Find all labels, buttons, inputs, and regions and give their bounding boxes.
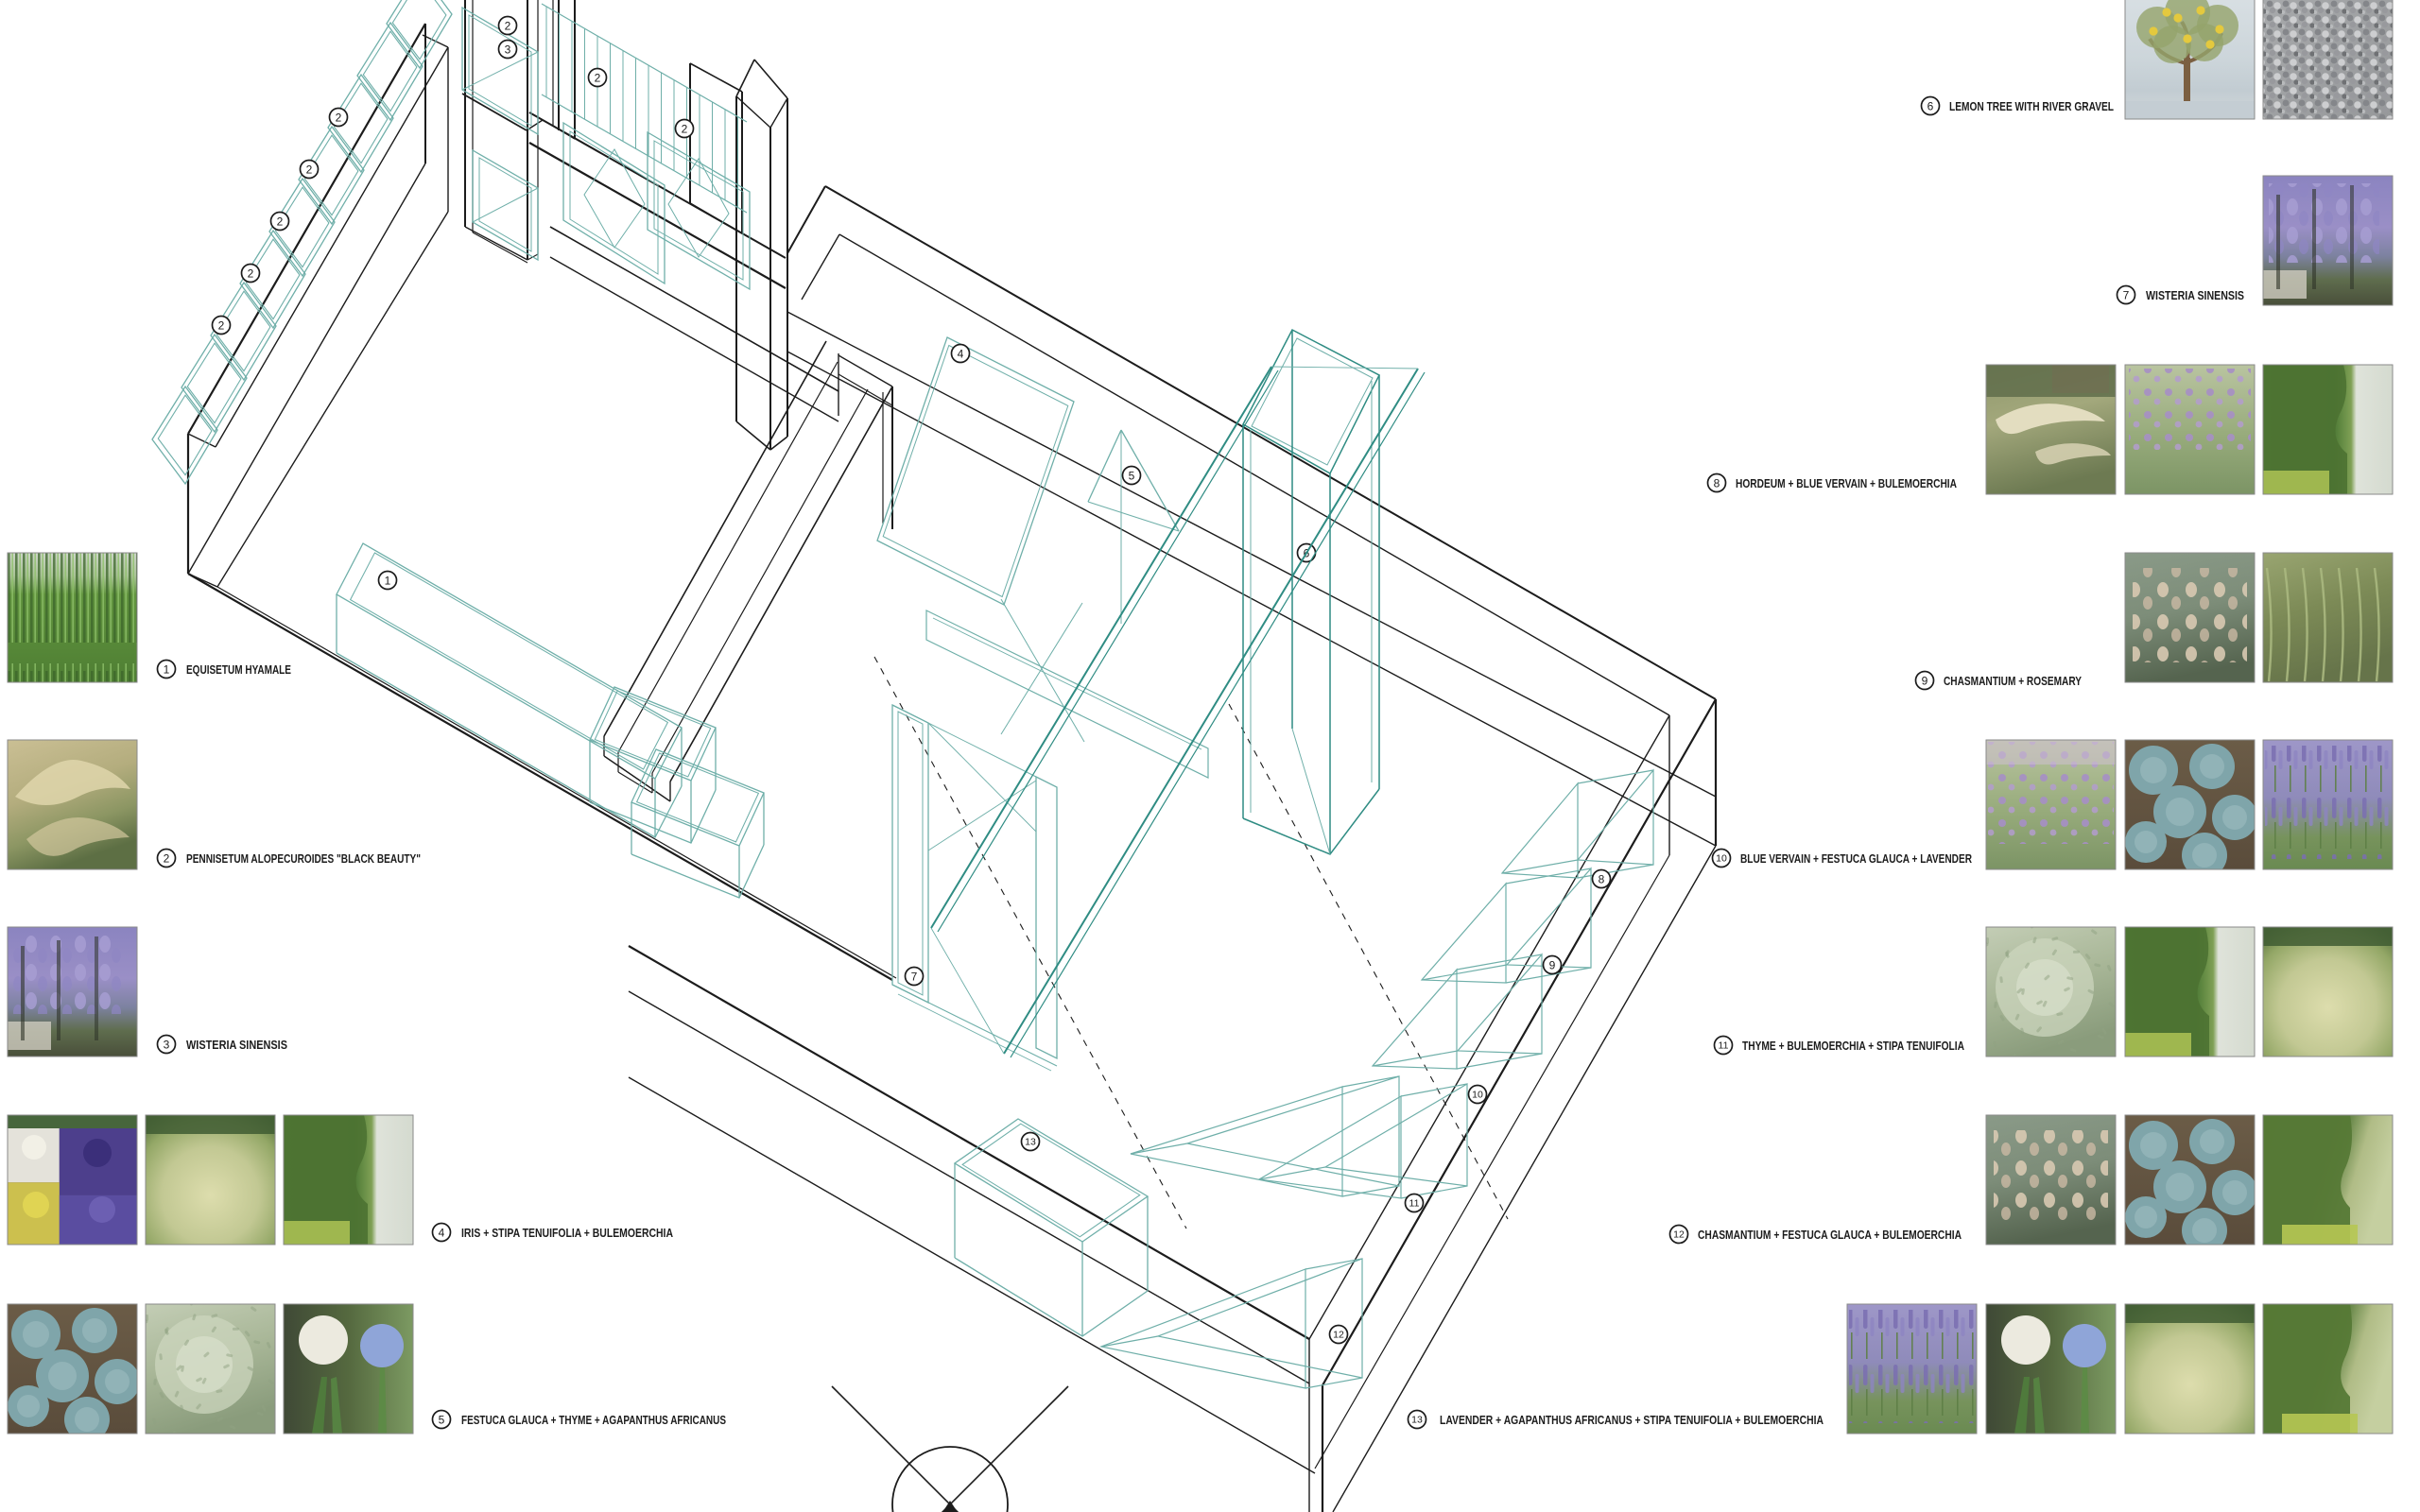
svg-text:9: 9 [1549, 959, 1556, 972]
svg-text:5: 5 [439, 1414, 445, 1427]
svg-text:2: 2 [682, 123, 688, 136]
svg-text:4: 4 [958, 348, 964, 361]
svg-text:1: 1 [164, 663, 170, 677]
svg-text:EQUISETUM HYAMALE: EQUISETUM HYAMALE [186, 662, 291, 677]
svg-text:2: 2 [277, 215, 284, 229]
svg-text:CHASMANTIUM + ROSEMARY: CHASMANTIUM + ROSEMARY [1944, 674, 2082, 688]
svg-text:4: 4 [439, 1227, 445, 1240]
svg-text:2: 2 [595, 72, 601, 85]
svg-text:2: 2 [218, 319, 225, 333]
svg-text:11: 11 [1409, 1198, 1420, 1210]
svg-text:13: 13 [1411, 1415, 1423, 1426]
svg-text:6: 6 [1927, 100, 1934, 113]
svg-text:10: 10 [1472, 1090, 1483, 1101]
svg-text:5: 5 [1129, 470, 1135, 483]
svg-text:WISTERIA SINENSIS: WISTERIA SINENSIS [186, 1038, 287, 1052]
svg-text:7: 7 [911, 971, 918, 984]
svg-text:2: 2 [505, 20, 511, 33]
svg-text:7: 7 [2123, 289, 2130, 302]
svg-text:IRIS + STIPA TENUIFOLIA + BULE: IRIS + STIPA TENUIFOLIA + BULEMOERCHIA [461, 1226, 673, 1240]
svg-text:8: 8 [1714, 477, 1720, 490]
svg-text:CHASMANTIUM + FESTUCA GLAUCA +: CHASMANTIUM + FESTUCA GLAUCA + BULEMOERC… [1698, 1228, 1962, 1242]
svg-text:10: 10 [1716, 853, 1727, 865]
svg-text:HORDEUM + BLUE VERVAIN + BULEM: HORDEUM + BLUE VERVAIN + BULEMOERCHIA [1736, 476, 1957, 490]
svg-text:11: 11 [1719, 1040, 1729, 1052]
svg-text:FESTUCA GLAUCA + THYME + AGAPA: FESTUCA GLAUCA + THYME + AGAPANTHUS AFRI… [461, 1413, 726, 1427]
svg-text:2: 2 [336, 112, 342, 125]
svg-text:2: 2 [306, 163, 313, 177]
svg-text:PENNISETUM ALOPECUROIDES "BLAC: PENNISETUM ALOPECUROIDES "BLACK BEAUTY" [186, 851, 421, 866]
svg-text:WISTERIA SINENSIS: WISTERIA SINENSIS [2146, 288, 2244, 302]
svg-text:THYME + BULEMOERCHIA + STIPA T: THYME + BULEMOERCHIA + STIPA TENUIFOLIA [1742, 1039, 1964, 1053]
svg-text:13: 13 [1025, 1137, 1036, 1148]
svg-text:LEMON TREE WITH RIVER GRAVEL: LEMON TREE WITH RIVER GRAVEL [1949, 99, 2114, 113]
svg-text:2: 2 [164, 852, 170, 866]
svg-text:2: 2 [248, 267, 254, 281]
svg-text:9: 9 [1922, 675, 1928, 688]
svg-text:BLUE VERVAIN + FESTUCA GLAUCA: BLUE VERVAIN + FESTUCA GLAUCA + LAVENDER [1740, 851, 1972, 866]
svg-text:3: 3 [505, 43, 511, 57]
svg-text:1: 1 [385, 575, 391, 588]
svg-text:LAVENDER + AGAPANTHUS AFRICAN: LAVENDER + AGAPANTHUS AFRICANUS + STIPA … [1440, 1413, 1824, 1427]
svg-text:12: 12 [1333, 1330, 1344, 1341]
svg-text:3: 3 [164, 1039, 170, 1052]
svg-text:12: 12 [1673, 1229, 1685, 1241]
svg-text:8: 8 [1599, 873, 1605, 886]
